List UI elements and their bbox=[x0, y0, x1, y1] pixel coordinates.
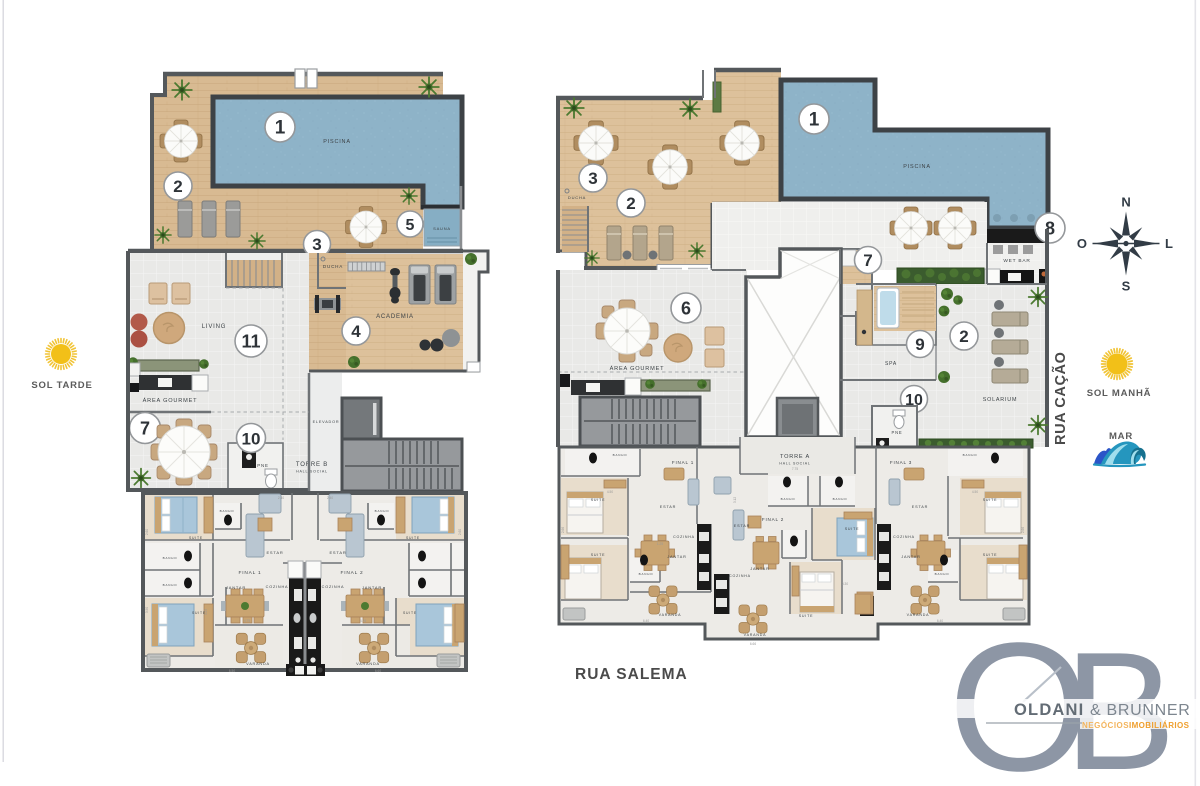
svg-text:VARANDA: VARANDA bbox=[246, 662, 270, 666]
svg-text:SUITE: SUITE bbox=[845, 527, 860, 531]
svg-text:COZINHA: COZINHA bbox=[266, 585, 289, 589]
svg-text:2.40: 2.40 bbox=[278, 496, 284, 500]
svg-text:2.66: 2.66 bbox=[1021, 527, 1025, 533]
svg-text:TORRE A: TORRE A bbox=[780, 454, 810, 460]
svg-text:BANHO: BANHO bbox=[781, 497, 796, 501]
svg-text:2.60: 2.60 bbox=[458, 529, 462, 535]
svg-text:JANTAR: JANTAR bbox=[901, 555, 920, 559]
svg-text:& BRUNNER: & BRUNNER bbox=[1090, 702, 1191, 719]
svg-text:ESTAR: ESTAR bbox=[266, 550, 283, 555]
svg-text:VARANDA: VARANDA bbox=[356, 662, 380, 666]
svg-text:7: 7 bbox=[863, 251, 872, 270]
svg-text:4.50: 4.50 bbox=[972, 490, 978, 494]
svg-text:COZINHA: COZINHA bbox=[322, 585, 345, 589]
svg-text:2: 2 bbox=[626, 194, 635, 213]
svg-text:2: 2 bbox=[173, 177, 182, 196]
svg-text:4.50: 4.50 bbox=[607, 490, 613, 494]
svg-text:SUITE: SUITE bbox=[189, 536, 203, 540]
svg-text:7.75: 7.75 bbox=[792, 467, 798, 471]
svg-text:BANHO: BANHO bbox=[935, 572, 950, 576]
svg-text:COZINHA: COZINHA bbox=[673, 535, 695, 539]
svg-text:SUITE: SUITE bbox=[406, 536, 420, 540]
svg-text:BANHO: BANHO bbox=[963, 453, 978, 457]
svg-text:BANHO: BANHO bbox=[163, 556, 178, 560]
svg-text:BANHO: BANHO bbox=[163, 583, 178, 587]
svg-text:4.75: 4.75 bbox=[244, 619, 250, 623]
svg-text:3.90: 3.90 bbox=[145, 607, 149, 613]
svg-text:LIVING: LIVING bbox=[202, 324, 226, 330]
svg-text:SOL TARDE: SOL TARDE bbox=[31, 380, 92, 391]
svg-text:SUITE: SUITE bbox=[983, 498, 998, 502]
svg-text:6.50: 6.50 bbox=[229, 669, 235, 673]
svg-text:PISCINA: PISCINA bbox=[903, 164, 931, 170]
svg-text:ESTAR: ESTAR bbox=[329, 550, 346, 555]
svg-text:3.25: 3.25 bbox=[204, 609, 208, 615]
svg-text:3: 3 bbox=[312, 235, 321, 254]
svg-text:HALL SOCIAL: HALL SOCIAL bbox=[296, 470, 328, 474]
svg-text:PNE: PNE bbox=[257, 463, 268, 468]
svg-text:4.76: 4.76 bbox=[360, 619, 366, 623]
svg-text:TORRE B: TORRE B bbox=[296, 462, 328, 468]
svg-text:NEGÓCIOS: NEGÓCIOS bbox=[1082, 721, 1129, 730]
svg-text:COZINHA: COZINHA bbox=[729, 574, 751, 578]
svg-text:DUCHA: DUCHA bbox=[568, 195, 586, 200]
svg-text:SOL MANHÃ: SOL MANHÃ bbox=[1087, 388, 1152, 399]
svg-text:VARANDA: VARANDA bbox=[907, 613, 930, 617]
svg-text:SPA: SPA bbox=[885, 361, 897, 367]
svg-text:3: 3 bbox=[588, 169, 597, 188]
svg-text:2.60: 2.60 bbox=[145, 529, 149, 535]
svg-text:6: 6 bbox=[681, 299, 691, 319]
svg-text:JANTAR: JANTAR bbox=[362, 585, 382, 590]
svg-text:ELEVADOR: ELEVADOR bbox=[313, 420, 340, 424]
svg-text:JANTAR: JANTAR bbox=[226, 585, 246, 590]
svg-text:IMOBILIÁRIOS: IMOBILIÁRIOS bbox=[1129, 721, 1190, 730]
svg-text:ESTAR: ESTAR bbox=[912, 505, 928, 509]
svg-text:N: N bbox=[1121, 195, 1130, 210]
svg-text:FINAL 1: FINAL 1 bbox=[238, 570, 261, 576]
svg-text:BANHO: BANHO bbox=[375, 509, 390, 513]
svg-text:BANHO: BANHO bbox=[833, 497, 848, 501]
svg-text:BANHO: BANHO bbox=[220, 509, 235, 513]
svg-text:FINAL 3: FINAL 3 bbox=[890, 460, 912, 465]
svg-text:SUITE: SUITE bbox=[799, 614, 814, 618]
svg-text:L: L bbox=[1165, 236, 1173, 251]
svg-text:HALL SOCIAL: HALL SOCIAL bbox=[779, 462, 810, 466]
svg-text:PNE: PNE bbox=[891, 430, 902, 435]
svg-text:O: O bbox=[1077, 236, 1087, 251]
svg-text:9: 9 bbox=[915, 335, 924, 354]
svg-text:6.60: 6.60 bbox=[375, 669, 381, 673]
svg-text:10: 10 bbox=[242, 430, 261, 449]
svg-text:WET BAR: WET BAR bbox=[1003, 258, 1030, 264]
svg-text:FINAL 2: FINAL 2 bbox=[762, 517, 784, 522]
svg-text:OLDANI: OLDANI bbox=[1014, 701, 1084, 719]
svg-text:RUA CAÇÃO: RUA CAÇÃO bbox=[1051, 352, 1069, 445]
svg-text:ESTAR: ESTAR bbox=[660, 505, 676, 509]
svg-text:SUITE: SUITE bbox=[591, 553, 606, 557]
svg-text:SAUNA: SAUNA bbox=[433, 226, 451, 231]
svg-text:2.66: 2.66 bbox=[561, 527, 565, 533]
svg-text:ÁREA GOURMET: ÁREA GOURMET bbox=[610, 365, 665, 372]
svg-text:ÁREA GOURMET: ÁREA GOURMET bbox=[143, 397, 198, 404]
svg-text:BANHO: BANHO bbox=[639, 572, 654, 576]
svg-text:VARANDA: VARANDA bbox=[744, 633, 767, 637]
svg-text:SUITE: SUITE bbox=[403, 611, 417, 615]
svg-text:ESTAR: ESTAR bbox=[734, 524, 750, 528]
svg-text:2: 2 bbox=[959, 327, 968, 346]
svg-text:1: 1 bbox=[809, 110, 820, 131]
svg-text:SUITE: SUITE bbox=[591, 498, 606, 502]
svg-text:11: 11 bbox=[241, 332, 260, 352]
svg-text:3.12: 3.12 bbox=[733, 497, 737, 503]
svg-text:BANHO: BANHO bbox=[613, 453, 628, 457]
svg-text:JANTAR: JANTAR bbox=[750, 567, 769, 571]
svg-text:SUITE: SUITE bbox=[983, 553, 998, 557]
svg-text:SOLARIUM: SOLARIUM bbox=[983, 397, 1018, 403]
svg-text:6.66: 6.66 bbox=[750, 642, 756, 646]
svg-text:DUCHA: DUCHA bbox=[323, 264, 343, 269]
svg-text:VARANDA: VARANDA bbox=[659, 613, 682, 617]
svg-text:JANTAR: JANTAR bbox=[667, 555, 686, 559]
svg-text:RUA SALEMA: RUA SALEMA bbox=[575, 666, 688, 683]
svg-text:S: S bbox=[1122, 279, 1131, 294]
svg-text:2.40: 2.40 bbox=[327, 496, 333, 500]
svg-text:5: 5 bbox=[406, 217, 415, 234]
svg-text:PISCINA: PISCINA bbox=[323, 139, 351, 145]
svg-text:4: 4 bbox=[351, 322, 361, 341]
svg-text:FINAL 2: FINAL 2 bbox=[340, 570, 363, 576]
svg-text:6.40: 6.40 bbox=[643, 619, 649, 623]
svg-text:6.40: 6.40 bbox=[937, 619, 943, 623]
svg-text:7: 7 bbox=[140, 419, 150, 439]
svg-text:3.30: 3.30 bbox=[842, 582, 848, 586]
svg-text:1: 1 bbox=[275, 118, 286, 139]
svg-text:FINAL 1: FINAL 1 bbox=[672, 460, 694, 465]
svg-text:1.25: 1.25 bbox=[657, 542, 663, 546]
svg-text:MAR: MAR bbox=[1109, 431, 1133, 442]
svg-text:COZINHA: COZINHA bbox=[893, 535, 915, 539]
svg-text:ACADEMIA: ACADEMIA bbox=[376, 314, 414, 320]
